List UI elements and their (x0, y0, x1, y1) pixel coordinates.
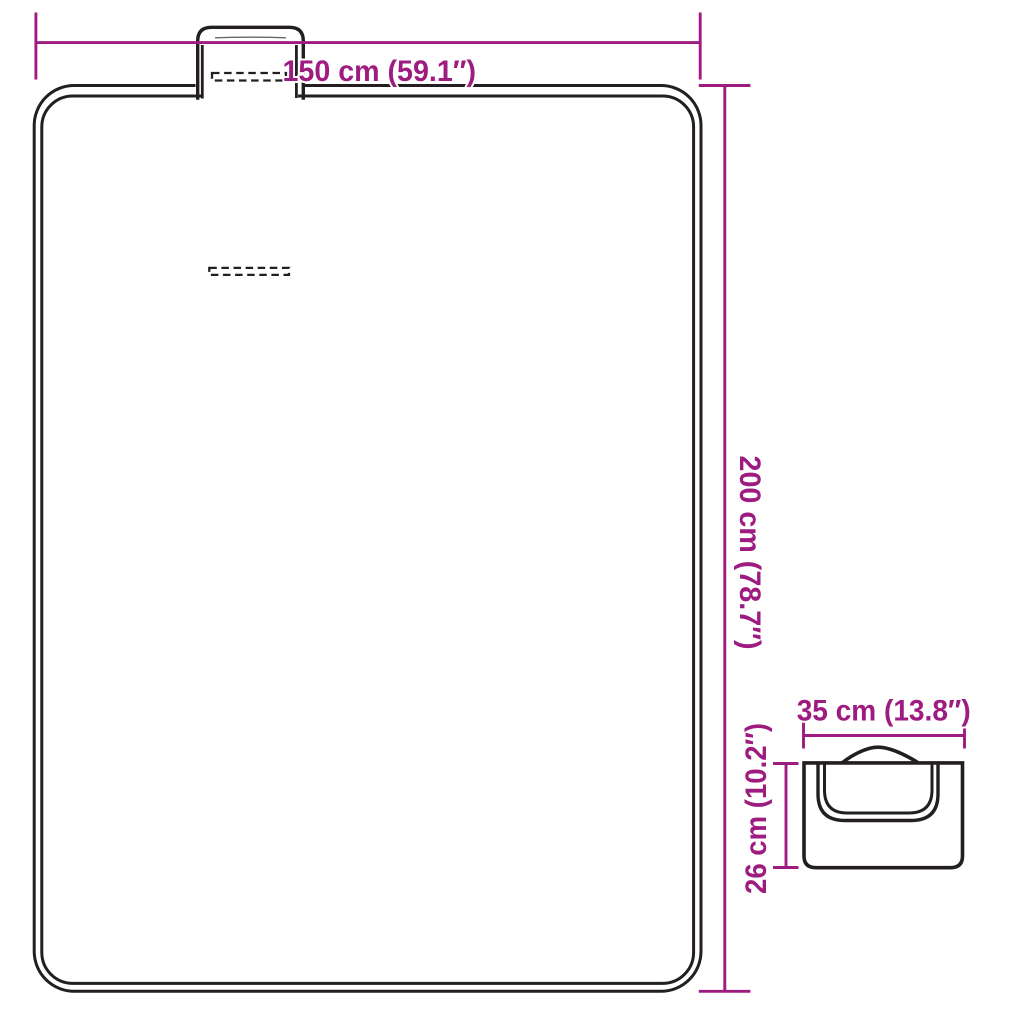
svg-text:35 cm (13.8″): 35 cm (13.8″) (797, 695, 971, 728)
svg-text:26 cm (10.2″): 26 cm (10.2″) (740, 723, 773, 894)
svg-text:200 cm (78.7″): 200 cm (78.7″) (733, 456, 766, 650)
svg-text:150 cm (59.1″): 150 cm (59.1″) (283, 55, 477, 88)
